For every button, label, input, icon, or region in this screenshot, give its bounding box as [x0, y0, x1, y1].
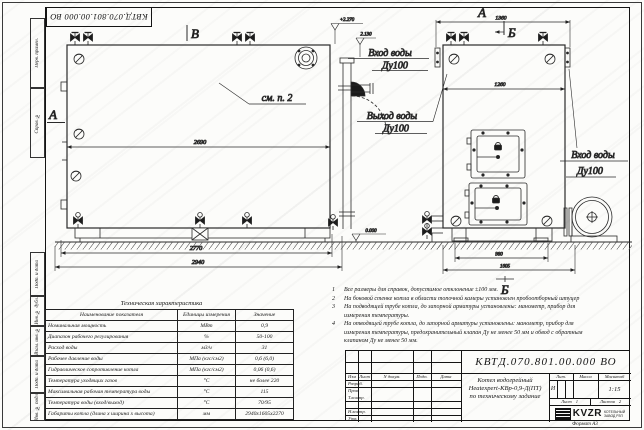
- inlet-label-side: Вход воды: [571, 150, 615, 161]
- tech-table-row: Диапазон рабочего регулирования%50-100: [46, 332, 294, 343]
- view-label-B: В: [191, 26, 199, 41]
- sheet-label: Лист: [561, 399, 572, 404]
- tech-table-row: Гидравлическое сопротивление котлаМПа (к…: [46, 365, 294, 376]
- lifting-lug-icon: [71, 171, 81, 181]
- cell-name: Габариты котла (длина х ширина х высота): [46, 409, 178, 420]
- cell-name: Расход воды: [46, 343, 178, 354]
- tech-header-name: Наименование показателя: [46, 310, 178, 321]
- note-text: На отводящей трубе котла, до запорной ар…: [344, 320, 596, 346]
- drain-valve-icon: [423, 212, 432, 228]
- section-label-B-top: Б: [507, 25, 516, 40]
- elbow-sector: [351, 82, 365, 96]
- level-label-2270: +2.270: [340, 18, 355, 23]
- valve-icon: [246, 33, 255, 46]
- valve-icon: [233, 33, 242, 46]
- cell-value: 50-100: [236, 332, 294, 343]
- lifting-lug-icon: [545, 54, 555, 64]
- sheets-label: Листов: [600, 399, 615, 404]
- lifting-lug-icon: [451, 216, 461, 226]
- kvzr-logo-icon: [555, 408, 571, 420]
- lifting-lugs-front: [71, 54, 84, 181]
- dimension-1260: 1260: [443, 82, 565, 89]
- cell-name: Температура уходящих газов: [46, 376, 178, 387]
- level-label-2130: 2.130: [360, 33, 372, 38]
- drain-fittings-front: [74, 213, 338, 241]
- valve-icon: [71, 33, 80, 46]
- cell-unit: °С: [178, 398, 236, 409]
- cell-value: 0,9: [236, 321, 294, 332]
- lit-header: Лит.: [549, 373, 573, 380]
- kvzr-logo-text: KVZR: [573, 408, 602, 419]
- view-label-A-top: А: [477, 5, 486, 20]
- note-number: 1: [329, 286, 344, 295]
- riser-pipe: [338, 58, 386, 229]
- tech-table: Наименование показателя Единицы измерени…: [45, 309, 294, 420]
- tech-table-row: Температура воды (вход/выход)°С70/95: [46, 398, 294, 409]
- row-nkontr: Н.контр.: [346, 408, 371, 415]
- inlet-dn-label: Ду100: [381, 61, 408, 72]
- note-text: Все размеры для справок, допустимое откл…: [344, 286, 596, 295]
- note-item: 1 Все размеры для справок, допустимое от…: [329, 286, 597, 295]
- note-number: 4: [329, 320, 344, 346]
- cell-unit: МПа (кгс/см2): [178, 365, 236, 376]
- note-number: 2: [329, 295, 344, 304]
- tech-header-value: Значение: [236, 310, 294, 321]
- tech-table-title: Техническая характеристика: [45, 300, 278, 307]
- dim-label-980: 980: [495, 253, 503, 258]
- row-blank: [346, 401, 371, 408]
- blower-fan: [564, 197, 617, 242]
- cell-unit: °С: [178, 387, 236, 398]
- cell-unit: м3/ч: [178, 343, 236, 354]
- drain-valve-icon: [74, 213, 83, 229]
- outlet-dn-label: Ду100: [382, 124, 409, 135]
- level-label-0000: 0.000: [365, 229, 377, 234]
- cell-value: не более 220: [236, 376, 294, 387]
- safety-valves-front: [71, 33, 255, 46]
- callout-see-note: см. п. 2: [219, 83, 306, 104]
- tech-table-row: Рабочее давление водыМПа (кгс/см2)0,6 (6…: [46, 354, 294, 365]
- drawing-sheet: Перв. примен. Справ. № Подп. и дата Инв.…: [0, 0, 644, 430]
- cell-name: Гидравлическое сопротивление котла: [46, 365, 178, 376]
- doc-number: КВТД.070.801.00.000 ВО: [461, 351, 631, 373]
- support-skid-side: [452, 228, 552, 241]
- notes-list: 1 Все размеры для справок, допустимое от…: [329, 286, 597, 346]
- view-label-A-left: А: [48, 107, 57, 122]
- level-mark-ground: 0.000: [352, 229, 386, 242]
- scale-value: 1:15: [598, 380, 631, 398]
- lit-value: И: [549, 380, 557, 398]
- tech-header-unit: Единицы измерения: [178, 310, 236, 321]
- cell-unit: МПа (кгс/см2): [178, 354, 236, 365]
- cell-unit: %: [178, 332, 236, 343]
- cell-value: 115: [236, 387, 294, 398]
- furnace-door-lower: [465, 183, 527, 225]
- sheet-number: Лист 1: [549, 398, 590, 405]
- safety-valves-side: [447, 33, 548, 46]
- valve-icon: [539, 33, 548, 46]
- product-name: Котел водогрейный Heatexpert-КВр-0,9-Д(П…: [461, 373, 549, 405]
- cell-value: 0,06 (0,6): [236, 365, 294, 376]
- cell-name: Максимальная рабочая температура воды: [46, 387, 178, 398]
- outlet-label: Выход воды: [367, 111, 418, 122]
- chimney-flange: [295, 47, 317, 69]
- cell-value: 0,6 (6,0): [236, 354, 294, 365]
- tech-characteristics: Техническая характеристика Наименование …: [45, 300, 278, 420]
- cell-name: Рабочее давление воды: [46, 354, 178, 365]
- sheets-value: 2: [619, 399, 621, 404]
- row-tkontr: Т.контр.: [346, 394, 371, 401]
- kvzr-sub-line2: ЗАВОД РЗП: [604, 414, 625, 418]
- ground-front: [55, 242, 452, 250]
- tech-table-row: Номинальная мощностьМВт0,9: [46, 321, 294, 332]
- lifting-lug-icon: [74, 54, 84, 64]
- boiler-body-side: [443, 45, 565, 228]
- level-mark-top: +2.270: [331, 18, 363, 44]
- col-ndoc: N докум.: [371, 373, 413, 380]
- front-view: 2690 2770 2940 +2.270: [47, 18, 452, 271]
- view-label-A: А: [477, 5, 486, 20]
- cell-unit: мм: [178, 409, 236, 420]
- dimension-1360: 1360: [436, 16, 570, 48]
- valve-icon: [447, 33, 456, 46]
- format-label: Формат А3: [540, 421, 630, 427]
- inlet-dn-label-side: Ду100: [576, 166, 603, 177]
- note-text: На боковой стенке котла в области топочн…: [344, 295, 596, 304]
- tech-table-row: Расход водым3/ч31: [46, 343, 294, 354]
- view-labels-front: В А: [47, 25, 199, 123]
- row-razrab: Разраб.: [346, 380, 371, 387]
- inlet-label: Вход воды: [368, 48, 412, 59]
- tech-table-header-row: Наименование показателя Единицы измерени…: [46, 310, 294, 321]
- dim-label-1260: 1260: [494, 82, 505, 88]
- cell-name: Температура воды (вход/выход): [46, 398, 178, 409]
- dim-label-1360: 1360: [495, 16, 506, 22]
- cell-name: Диапазон рабочего регулирования: [46, 332, 178, 343]
- row-utv: Утв.: [346, 415, 371, 422]
- scale-header: Масштаб: [598, 373, 631, 380]
- see-note-label: см. п. 2: [262, 93, 293, 104]
- company-logo: KVZR КОТЕЛЬНЫЙ ЗАВОД РЗП: [549, 405, 631, 422]
- col-izm: Изм: [346, 373, 358, 380]
- drain-valve-icon: [243, 213, 252, 229]
- note-item: 3 На подводящей трубе котла, до запорной…: [329, 303, 597, 320]
- side-drain-fittings: [423, 212, 444, 243]
- col-list: Лист: [358, 373, 371, 380]
- dim-label-2770: 2770: [190, 245, 203, 252]
- row-prov: Пров.: [346, 387, 371, 394]
- lifting-lug-icon: [449, 54, 459, 64]
- kvzr-logo-subtitle: КОТЕЛЬНЫЙ ЗАВОД РЗП: [604, 410, 625, 418]
- tech-table-row: Максимальная рабочая температура воды°С1…: [46, 387, 294, 398]
- note-text: На подводящей трубе котла, до запорной а…: [344, 303, 596, 320]
- valve-icon: [84, 33, 93, 46]
- note-item: 4 На отводящей трубе котла, до запорной …: [329, 320, 597, 346]
- tech-table-row: Габариты котла (длина х ширина х высота)…: [46, 409, 294, 420]
- col-podp: Подп.: [413, 373, 431, 380]
- section-mark-top: Б: [495, 21, 516, 40]
- sheets-total: Листов 2: [590, 398, 631, 405]
- lifting-lug-icon: [542, 216, 552, 226]
- ground-side: [420, 242, 632, 250]
- cell-value: 2940х1605х2270: [236, 409, 294, 420]
- title-block: КВТД.070.801.00.000 ВО Изм Лист N докум.…: [345, 350, 630, 421]
- cell-unit: °С: [178, 376, 236, 387]
- callout-outlet-front: Выход воды Ду100: [357, 74, 447, 135]
- dimension-2690: 2690: [67, 139, 330, 147]
- left-fittings: [61, 82, 67, 209]
- cell-value: 31: [236, 343, 294, 354]
- boiler-body-front: [67, 45, 330, 228]
- drain-valve-icon: [196, 213, 205, 229]
- dim-label-2940: 2940: [192, 259, 205, 266]
- lifting-lugs-side: [449, 54, 555, 226]
- cell-name: Номинальная мощность: [46, 321, 178, 332]
- note-item: 2 На боковой стенке котла в области топо…: [329, 295, 597, 304]
- product-name-line1: Котел водогрейный: [477, 377, 532, 385]
- furnace-door-upper: [467, 130, 525, 178]
- dim-label-1605: 1605: [500, 265, 511, 270]
- cell-unit: МВт: [178, 321, 236, 332]
- lifting-lug-icon: [74, 129, 84, 139]
- note-number: 3: [329, 303, 344, 320]
- dimension-2940: 2940: [55, 236, 342, 271]
- cell-value: 70/95: [236, 398, 294, 409]
- side-view: 1360 1260 980 1605 А: [420, 5, 632, 297]
- sheet-value: 1: [576, 399, 578, 404]
- product-name-line3: по техническому задание: [470, 393, 541, 401]
- dim-label-2690: 2690: [194, 139, 207, 146]
- valve-icon: [460, 33, 469, 46]
- tech-table-row: Температура уходящих газов°Сне более 220: [46, 376, 294, 387]
- callout-inlet-side: Вход воды Ду100: [560, 69, 628, 177]
- product-name-line2: Heatexpert-КВр-0,9-Д(ПТ): [469, 385, 542, 393]
- col-data: Дата: [431, 373, 461, 380]
- mass-header: Масса: [573, 373, 598, 380]
